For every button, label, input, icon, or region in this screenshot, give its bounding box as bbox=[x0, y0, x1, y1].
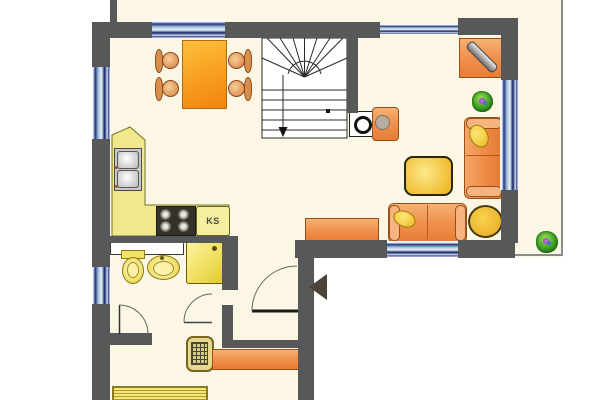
floor-plan: KS bbox=[0, 0, 600, 400]
hall-door-arc bbox=[184, 294, 212, 322]
door-swings bbox=[119, 266, 298, 334]
entrance-arrow-icon bbox=[309, 274, 327, 300]
architecture-top-layer bbox=[0, 0, 600, 400]
entrance-door-arc bbox=[252, 266, 297, 311]
bathroom-door-arc bbox=[119, 305, 148, 334]
